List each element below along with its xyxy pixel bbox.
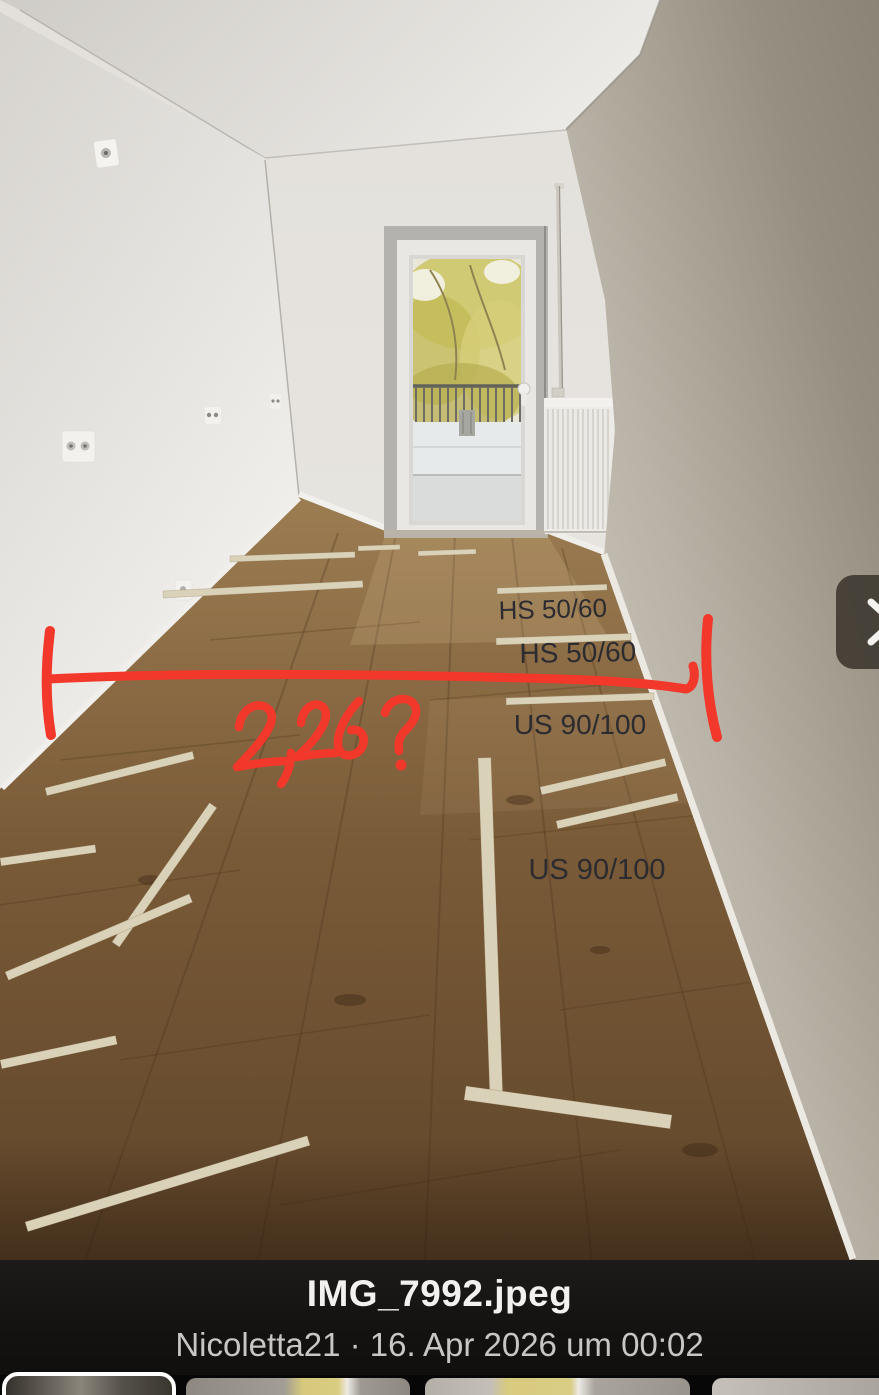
- photo-filename: IMG_7992.jpeg: [0, 1260, 879, 1315]
- balcony-door: [384, 226, 548, 538]
- dimension-label: HS 50/60: [519, 636, 636, 669]
- dimension-label: US 90/100: [514, 709, 646, 740]
- photo-meta: Nicoletta21 · 16. Apr 2026 um 00:02: [0, 1326, 879, 1364]
- next-photo-button[interactable]: [836, 575, 879, 669]
- door-threshold: [384, 530, 548, 538]
- thumbnail[interactable]: [186, 1378, 410, 1395]
- dimension-label: US 90/100: [528, 854, 665, 886]
- red-left-tick: [47, 631, 51, 735]
- radiator: [544, 398, 614, 534]
- balcony-parapet: [413, 410, 521, 521]
- photo-canvas[interactable]: HS 50/60 HS 50/60 US 90/100 US 90/100: [0, 0, 879, 1260]
- thumbnail[interactable]: [425, 1378, 690, 1395]
- thumbnail[interactable]: [712, 1378, 879, 1395]
- photo-info-bar: IMG_7992.jpeg Nicoletta21 · 16. Apr 2026…: [0, 1260, 879, 1375]
- photo-viewer: HS 50/60 HS 50/60 US 90/100 US 90/100: [0, 0, 879, 1395]
- dimension-label: HS 50/60: [498, 593, 607, 626]
- thumbnail-selected[interactable]: [2, 1372, 176, 1395]
- chevron-right-icon: [865, 597, 879, 647]
